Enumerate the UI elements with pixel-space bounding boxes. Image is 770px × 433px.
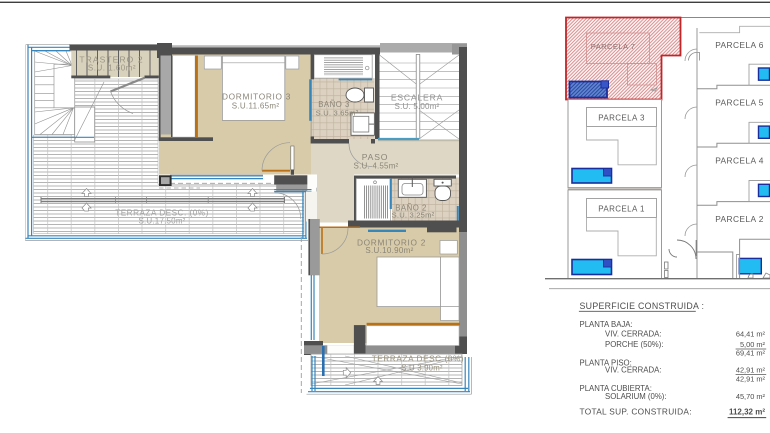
svg-text:S.U. 5.00m²: S.U. 5.00m² (395, 102, 440, 111)
svg-text:PARCELA 6: PARCELA 6 (715, 40, 764, 50)
svg-text:PARCELA 5: PARCELA 5 (715, 98, 764, 108)
svg-text:DORMITORIO 3: DORMITORIO 3 (222, 92, 291, 102)
svg-text:PARCELA 3: PARCELA 3 (598, 114, 645, 123)
svg-text:VIV. CERRADA:: VIV. CERRADA: (605, 330, 661, 339)
svg-text:PORCHE (50%):: PORCHE (50%): (605, 340, 664, 349)
svg-text:45,70 m²: 45,70 m² (736, 392, 766, 401)
svg-text:PARCELA 4: PARCELA 4 (715, 156, 764, 166)
svg-text:SOLARIUM (0%):: SOLARIUM (0%): (605, 392, 667, 401)
svg-text:VIV. CERRADA:: VIV. CERRADA: (605, 366, 661, 375)
svg-text:PARCELA 1: PARCELA 1 (598, 205, 645, 214)
svg-text:TOTAL SUP. CONSTRUIDA:: TOTAL SUP. CONSTRUIDA: (580, 406, 692, 416)
svg-text:112,32 m²: 112,32 m² (729, 407, 765, 416)
svg-text:S.U.11.65m²: S.U.11.65m² (232, 102, 280, 111)
svg-text:PLANTA BAJA:: PLANTA BAJA: (580, 320, 633, 329)
svg-text:S.U. 4.55m²: S.U. 4.55m² (354, 162, 399, 171)
svg-text:S.U.10.90m²: S.U.10.90m² (365, 246, 413, 255)
svg-text:PARCELA 2: PARCELA 2 (715, 214, 764, 224)
svg-text:69,41 m²: 69,41 m² (736, 349, 766, 358)
svg-text:PASO: PASO (362, 152, 388, 162)
svg-text:S.U. 3.25m²: S.U. 3.25m² (392, 211, 435, 220)
svg-text:SUPERFICIE CONSTRUIDA :: SUPERFICIE CONSTRUIDA : (580, 301, 705, 311)
svg-text:TERRAZA DESC (0%): TERRAZA DESC (0%) (372, 354, 465, 363)
svg-text:S.U 3.90m²: S.U 3.90m² (401, 363, 443, 372)
svg-text:S.U. 3.65m²: S.U. 3.65m² (316, 108, 359, 117)
svg-text:42,91 m²: 42,91 m² (736, 374, 766, 383)
svg-text:PARCELA 7: PARCELA 7 (591, 42, 635, 51)
svg-text:S.U. 1.60m²: S.U. 1.60m² (88, 64, 136, 73)
svg-text:S.U.17.50m²: S.U.17.50m² (138, 216, 185, 225)
svg-text:64,41 m²: 64,41 m² (736, 330, 766, 339)
